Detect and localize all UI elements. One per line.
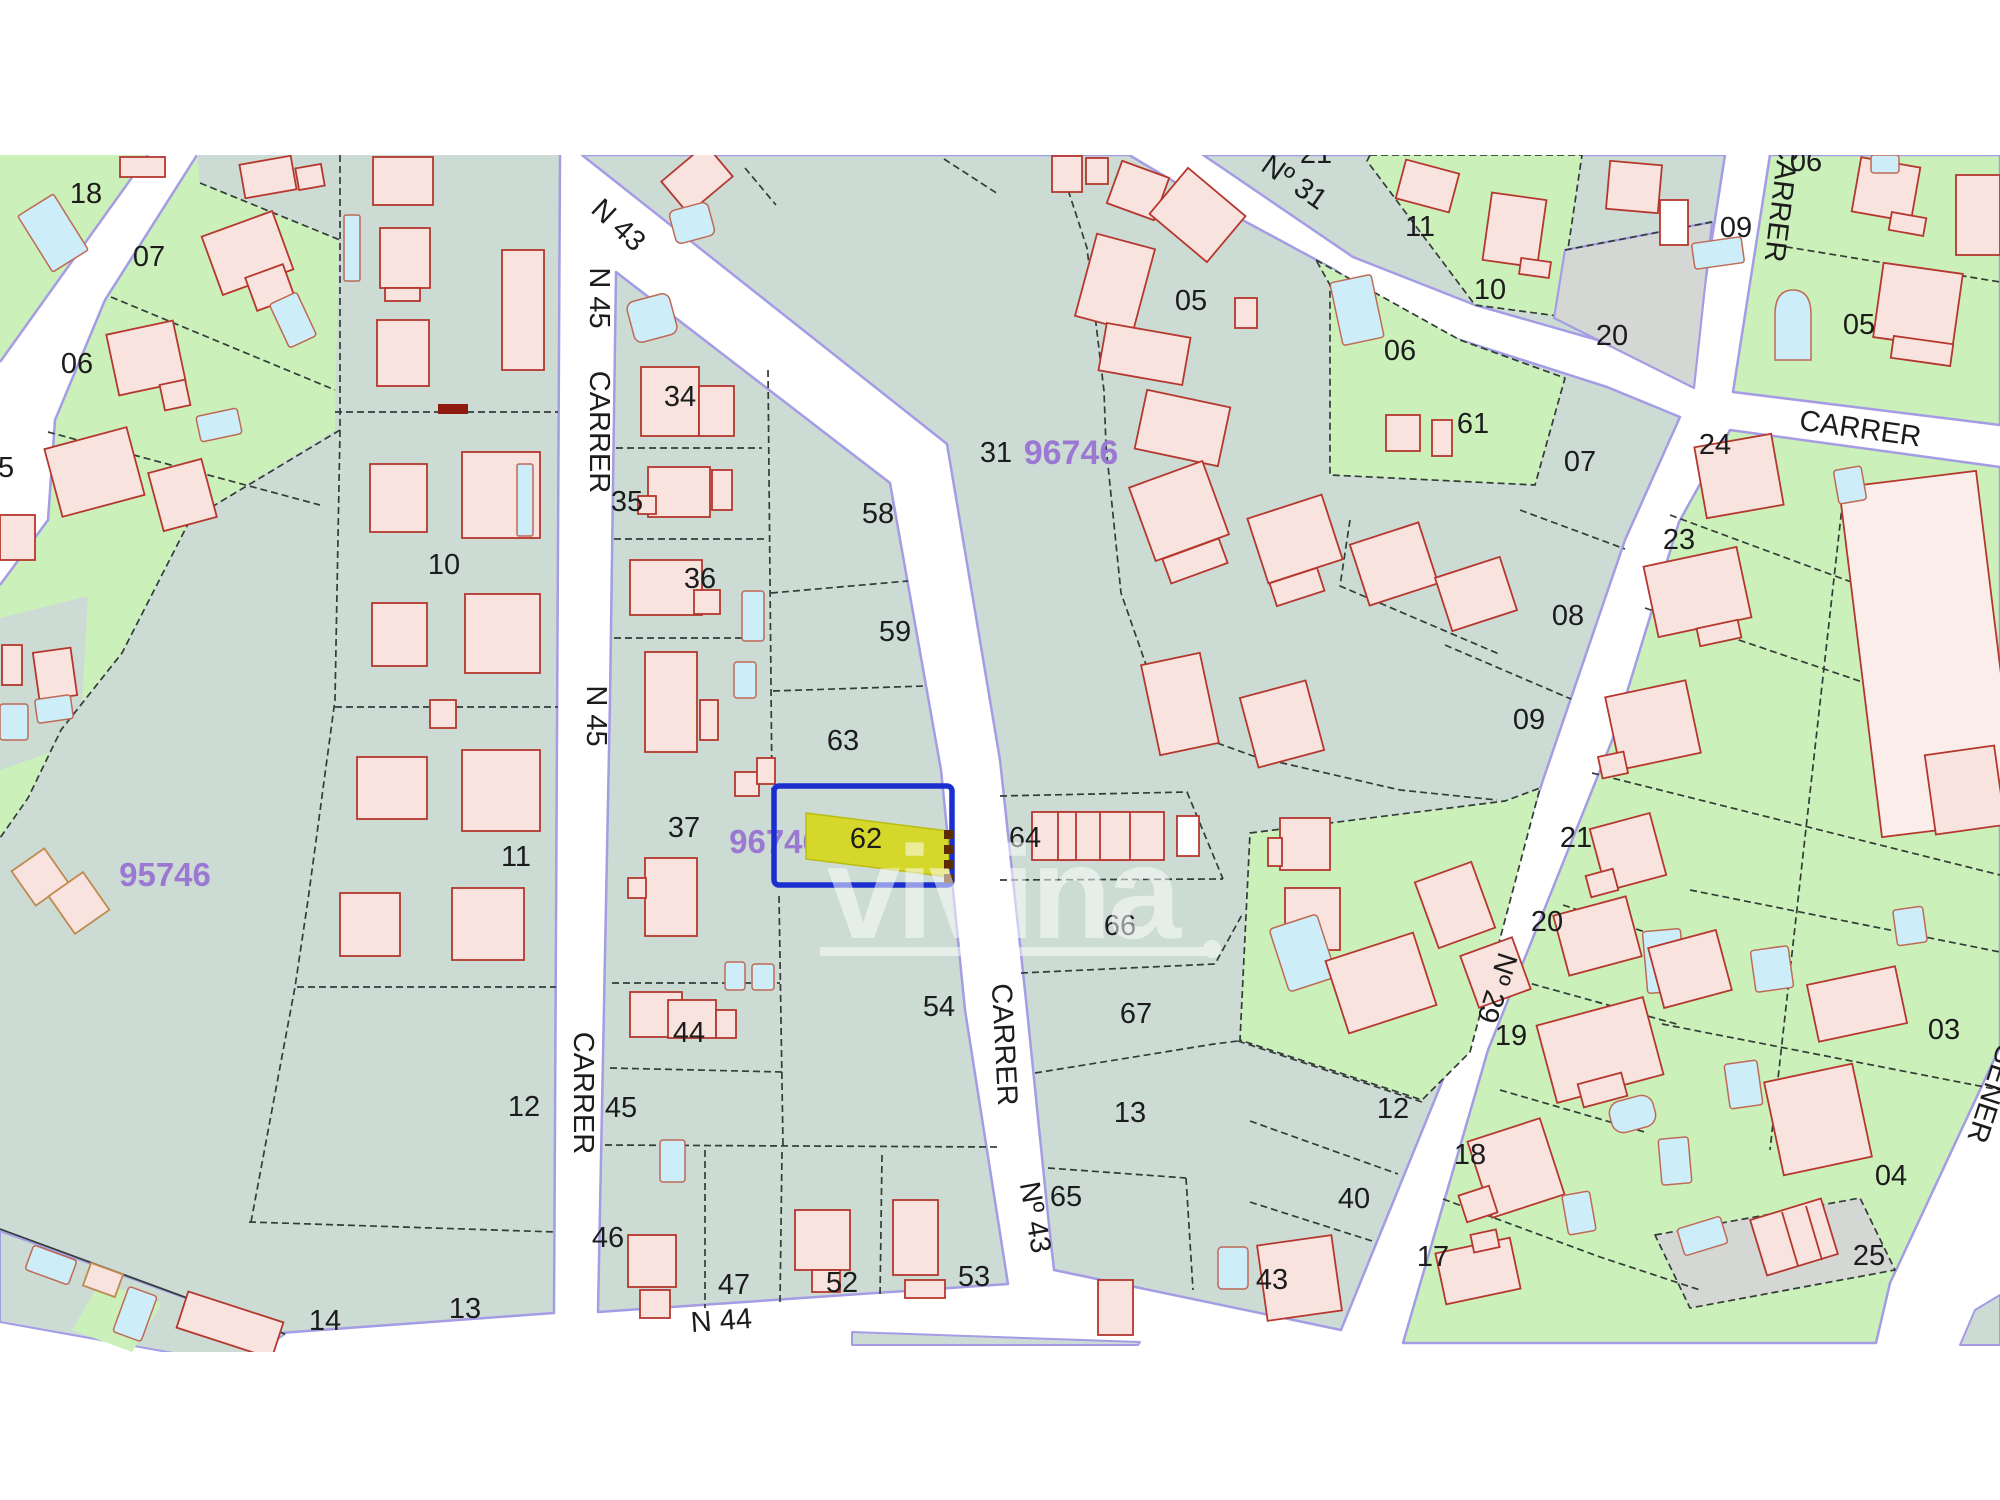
svg-text:46: 46 [592,1222,624,1254]
svg-text:21: 21 [1560,822,1592,854]
svg-text:58: 58 [862,498,894,530]
svg-text:24: 24 [1699,429,1731,461]
svg-text:61: 61 [1457,408,1489,440]
svg-text:10: 10 [428,549,460,581]
svg-text:CARRER: CARRER [583,371,615,493]
svg-text:CARRER: CARRER [985,983,1023,1107]
svg-text:11: 11 [1405,211,1435,243]
svg-text:12: 12 [1377,1093,1409,1125]
svg-text:04: 04 [1875,1160,1907,1192]
svg-text:06: 06 [61,348,93,380]
svg-text:31: 31 [980,437,1012,469]
svg-text:40: 40 [1338,1183,1370,1215]
svg-text:20: 20 [1596,320,1628,352]
svg-text:37: 37 [668,812,700,844]
svg-text:vivina: vivina [827,819,1183,966]
svg-text:11: 11 [501,841,531,873]
svg-text:63: 63 [827,725,859,757]
svg-text:53: 53 [958,1261,990,1293]
svg-text:45: 45 [605,1092,637,1124]
svg-text:54: 54 [923,991,955,1023]
svg-text:N 45: N 45 [580,685,612,746]
svg-text:08: 08 [1552,600,1584,632]
svg-text:12: 12 [508,1091,540,1123]
svg-text:N 45: N 45 [583,267,615,328]
svg-text:10: 10 [1474,274,1506,306]
svg-text:19: 19 [1495,1020,1527,1052]
svg-text:65: 65 [1050,1181,1082,1213]
svg-text:25: 25 [1853,1240,1885,1272]
svg-text:59: 59 [879,616,911,648]
svg-text:09: 09 [1513,704,1545,736]
svg-text:43: 43 [1256,1264,1288,1296]
svg-text:18: 18 [1454,1139,1486,1171]
svg-text:05: 05 [1175,285,1207,317]
svg-text:13: 13 [1114,1097,1146,1129]
svg-text:07: 07 [133,241,165,273]
svg-text:23: 23 [1663,524,1695,556]
svg-text:47: 47 [718,1269,750,1301]
svg-text:13: 13 [449,1293,481,1325]
svg-text:20: 20 [1531,906,1563,938]
svg-text:14: 14 [309,1305,341,1337]
svg-text:5: 5 [0,452,14,484]
svg-text:18: 18 [70,178,102,210]
svg-text:36: 36 [684,563,716,595]
svg-text:35: 35 [611,486,643,518]
svg-text:CARRER: CARRER [567,1032,599,1154]
svg-text:34: 34 [664,381,696,413]
svg-text:N 44: N 44 [690,1303,753,1339]
svg-text:07: 07 [1564,446,1596,478]
svg-text:44: 44 [673,1017,705,1049]
svg-text:95746: 95746 [119,856,211,893]
svg-text:05: 05 [1843,309,1875,341]
svg-text:96746: 96746 [1024,434,1119,472]
svg-text:52: 52 [826,1267,858,1299]
svg-text:09: 09 [1720,212,1752,244]
svg-text:17: 17 [1417,1241,1449,1273]
svg-text:03: 03 [1928,1014,1960,1046]
svg-text:67: 67 [1120,998,1152,1030]
svg-text:06: 06 [1384,335,1416,367]
